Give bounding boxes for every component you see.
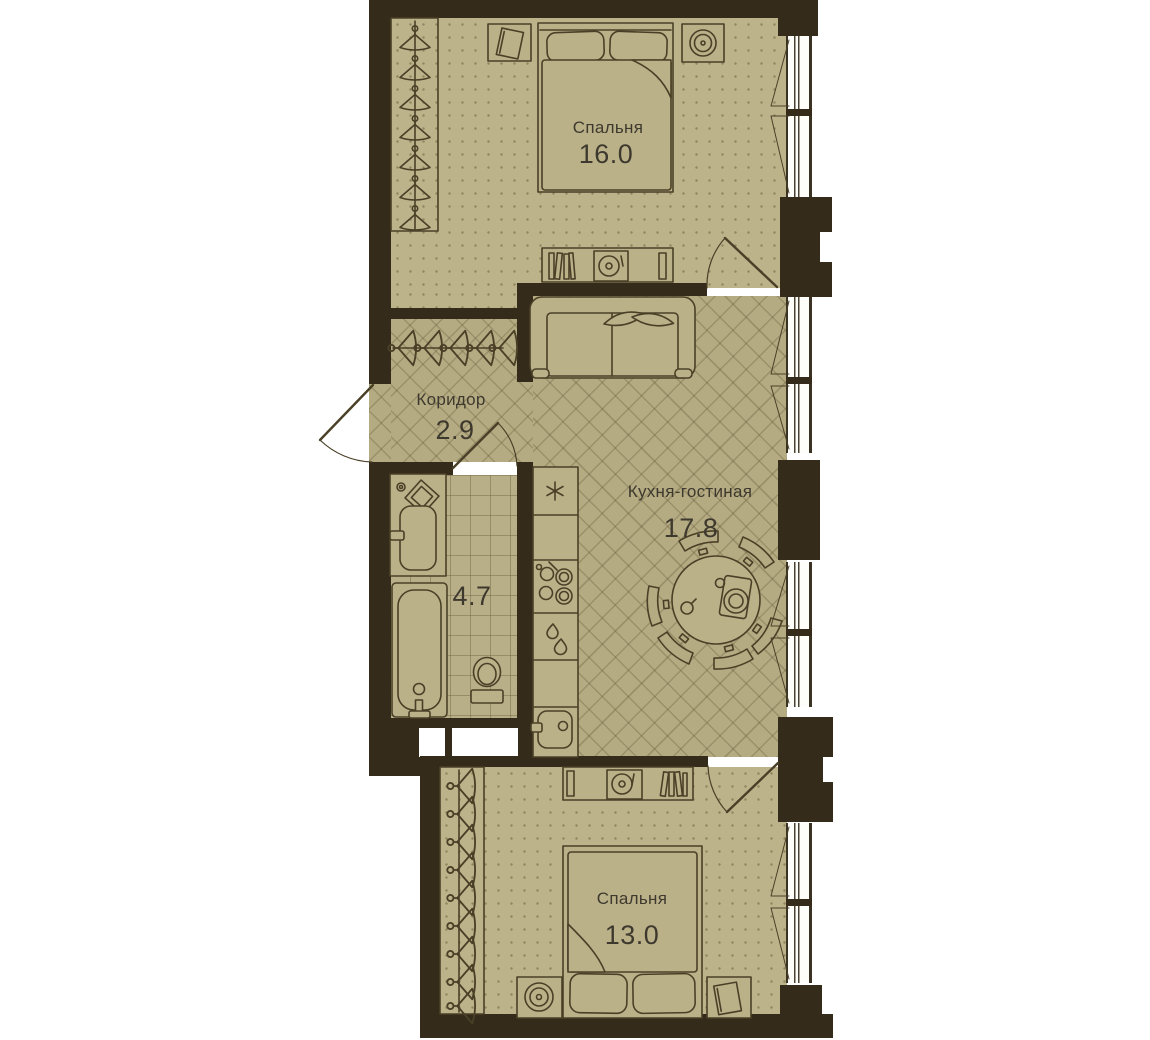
- bedroom-2-door: [708, 763, 778, 812]
- floor-plan: Спальня 16.0 Коридор 2.9 Кухня-гостиная …: [0, 0, 1150, 1040]
- furniture-overlay: [0, 0, 1150, 1040]
- bedroom-1-door: [707, 238, 777, 288]
- bedroom-2-area: 13.0: [605, 922, 660, 949]
- bedroom-1-area: 16.0: [579, 141, 634, 168]
- bedroom-2-label: Спальня: [597, 890, 667, 907]
- bedroom-1-label: Спальня: [573, 119, 643, 136]
- dining-table-set: [647, 531, 782, 669]
- media-shelf-2: [563, 767, 693, 800]
- media-shelf-1: [542, 248, 673, 282]
- kitchen-living-label: Кухня-гостиная: [628, 483, 752, 500]
- corridor-area: 2.9: [435, 417, 474, 444]
- sofa: [530, 297, 695, 378]
- speaker-1: [682, 24, 724, 62]
- coat-rack: [388, 331, 517, 366]
- nightstand-2: [707, 977, 751, 1018]
- window-casement-marks: [771, 40, 789, 979]
- entry-door: [320, 385, 373, 462]
- speaker-2: [517, 977, 562, 1018]
- washbasin-unit: [390, 474, 446, 576]
- kitchen-counter: [531, 467, 578, 757]
- nightstand-1: [488, 24, 531, 61]
- wardrobe-1: [391, 18, 438, 231]
- bathroom-area: 4.7: [452, 583, 491, 610]
- corridor-label: Коридор: [416, 391, 485, 408]
- kitchen-living-area: 17.8: [664, 515, 719, 542]
- bathtub: [392, 583, 447, 718]
- toilet: [471, 658, 503, 704]
- wardrobe-2: [440, 767, 484, 1023]
